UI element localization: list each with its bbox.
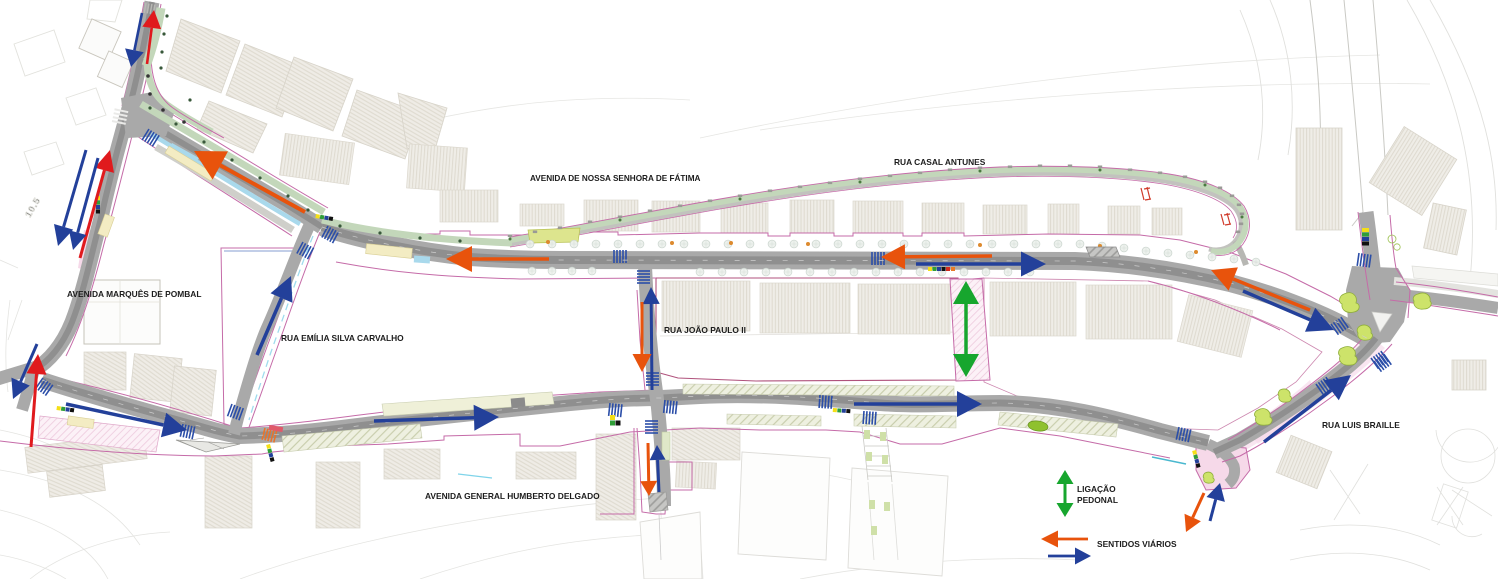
svg-text:PEDONAL: PEDONAL (1077, 495, 1118, 505)
svg-text:RUA JOÃO PAULO II: RUA JOÃO PAULO II (664, 325, 746, 335)
svg-text:RUA LUIS BRAILLE: RUA LUIS BRAILLE (1322, 420, 1400, 430)
svg-text:LIGAÇÃO: LIGAÇÃO (1077, 484, 1116, 494)
svg-text:SENTIDOS VIÁRIOS: SENTIDOS VIÁRIOS (1097, 538, 1177, 549)
svg-text:RUA EMÍLIA SILVA CARVALHO: RUA EMÍLIA SILVA CARVALHO (281, 332, 404, 343)
svg-text:AVENIDA DE NOSSA SENHORA DE FÁ: AVENIDA DE NOSSA SENHORA DE FÁTIMA (530, 173, 701, 183)
svg-text:AVENIDA MARQUÊS DE POMBAL: AVENIDA MARQUÊS DE POMBAL (67, 288, 201, 299)
svg-text:RUA CASAL ANTUNES: RUA CASAL ANTUNES (894, 157, 986, 167)
svg-text:AVENIDA GENERAL HUMBERTO DELGA: AVENIDA GENERAL HUMBERTO DELGADO (425, 491, 600, 501)
